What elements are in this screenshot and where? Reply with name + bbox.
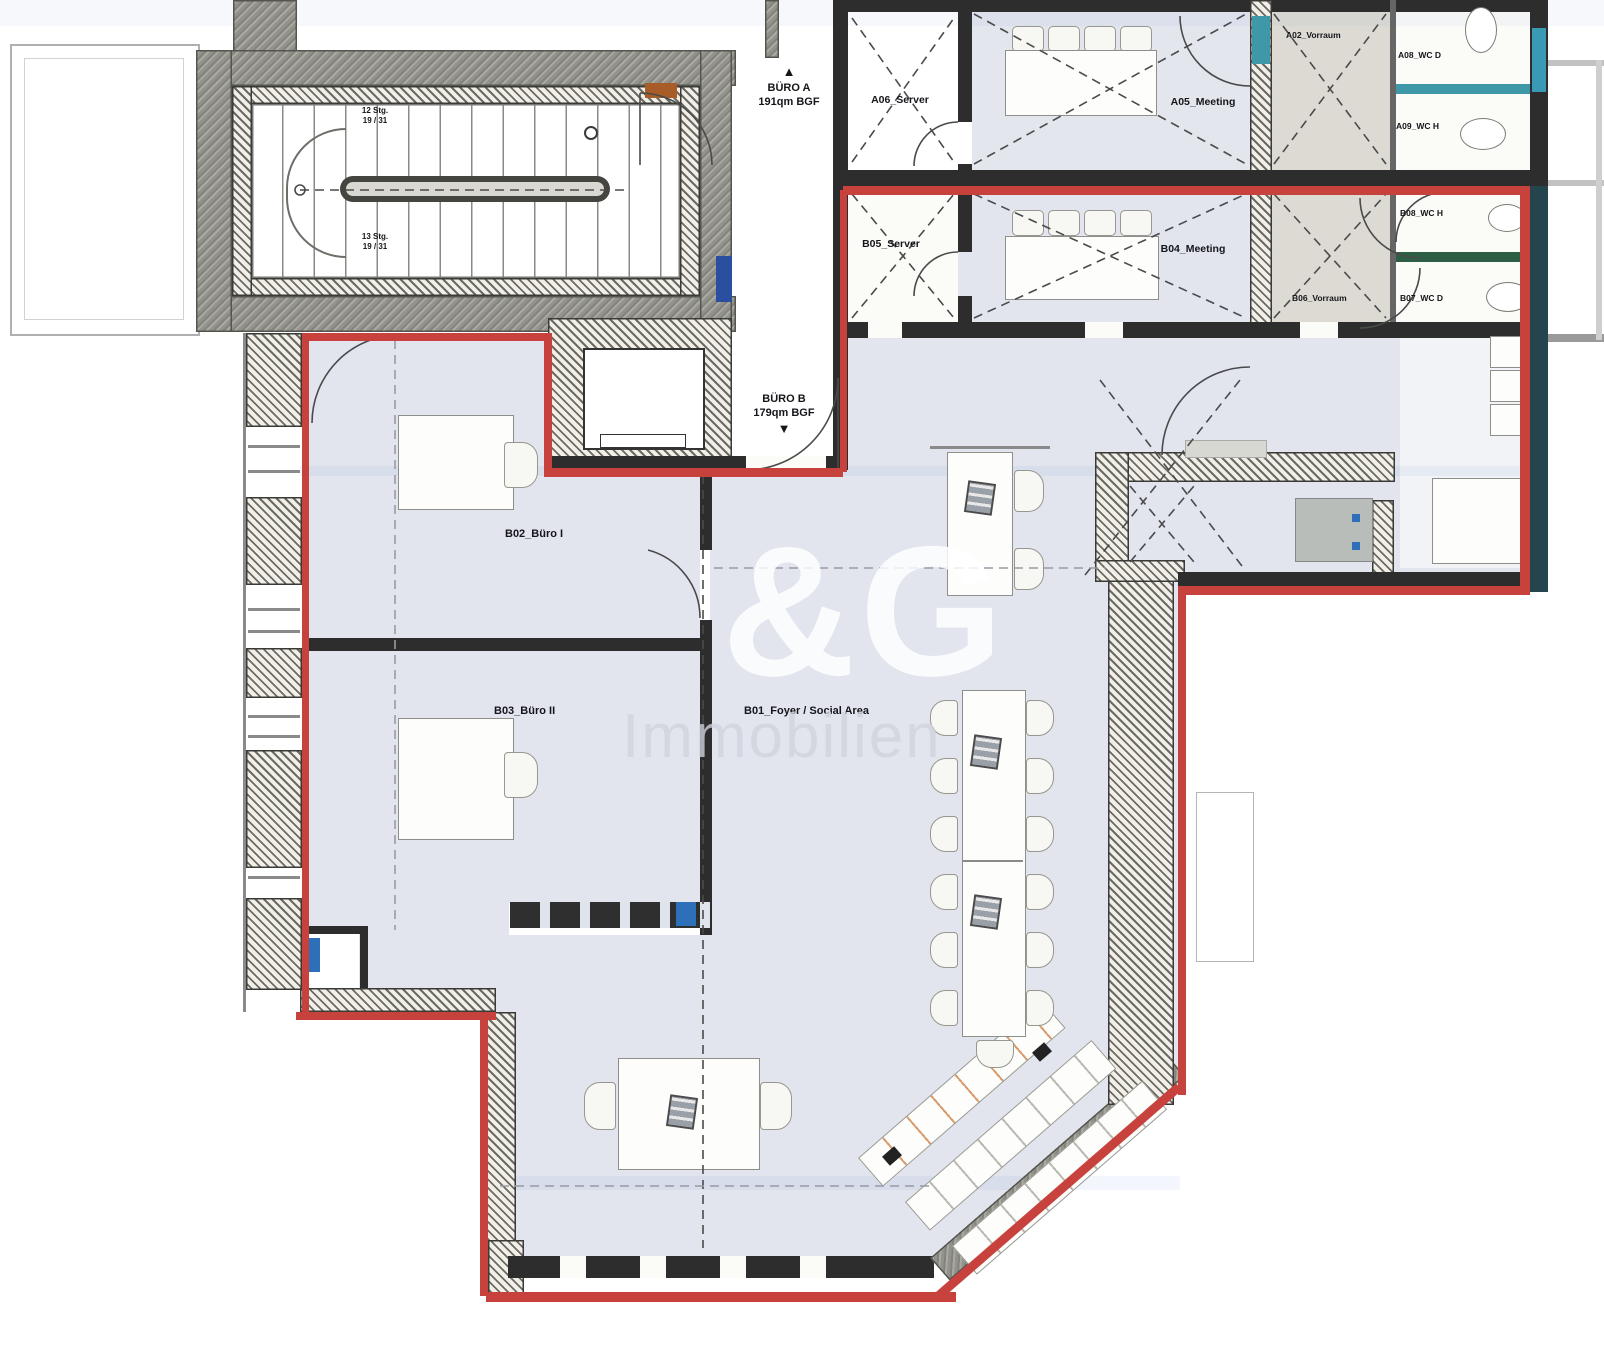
element: BÜRO B xyxy=(726,392,842,406)
door-opening xyxy=(1300,322,1338,338)
desk-chair xyxy=(504,442,538,488)
element xyxy=(1180,16,1250,86)
ghost-box xyxy=(1196,792,1254,962)
down-arrow-icon: ▼ xyxy=(726,421,842,438)
chair xyxy=(1012,26,1044,52)
window-glazing xyxy=(248,715,300,718)
room-label-b04: B04_Meeting xyxy=(1138,243,1248,257)
foyer-right-wall xyxy=(1108,560,1174,1105)
meeting-table-a05 xyxy=(1005,50,1157,116)
element xyxy=(1130,486,1194,562)
chair xyxy=(930,874,958,910)
desk-chair xyxy=(504,752,538,798)
room-label-a05: A05_Meeting xyxy=(1148,96,1258,110)
neighbor-wall-line xyxy=(1596,60,1602,340)
chair xyxy=(976,1040,1014,1068)
strip-south-wall xyxy=(848,322,1530,338)
boundary-top xyxy=(843,186,1530,195)
table-joint xyxy=(963,860,1023,862)
small-wc-wall xyxy=(360,926,368,994)
room-label-b06: B06_Vorraum xyxy=(1292,293,1347,304)
room-label-a06: A06_Server xyxy=(845,94,955,108)
element xyxy=(914,122,958,166)
element xyxy=(852,194,954,318)
room-label-a02: A02_Vorraum xyxy=(1286,30,1341,41)
boundary-foyer-right xyxy=(1178,595,1186,1095)
terrace-inner-line xyxy=(24,58,184,320)
kitchen-cabinet xyxy=(1185,440,1267,458)
room-label-b03: B03_Büro II xyxy=(494,704,555,718)
chair xyxy=(760,1082,792,1130)
room-label-a08: A08_WC D xyxy=(1398,50,1441,61)
top-wall xyxy=(848,0,1530,12)
teal-wall-accent xyxy=(1252,16,1270,64)
office-foyer-partition xyxy=(700,620,712,935)
toilet xyxy=(1465,7,1497,53)
stair-label-lower: 13 Stg.19 / 31 xyxy=(343,232,407,251)
orange-fixture xyxy=(645,83,677,98)
lower-step-wall xyxy=(300,988,496,1012)
blue-dot xyxy=(1352,542,1360,550)
window-slot xyxy=(640,1256,666,1278)
element xyxy=(914,252,958,296)
window-slot xyxy=(800,1256,826,1278)
chair xyxy=(1084,26,1116,52)
kitchen-south-wall xyxy=(1178,572,1530,586)
element xyxy=(852,18,954,162)
chair xyxy=(930,932,958,968)
small-wc-wall xyxy=(302,926,368,934)
chair xyxy=(584,1082,616,1130)
window-slot xyxy=(560,1256,586,1278)
chair xyxy=(1084,210,1116,236)
desk-b03 xyxy=(398,718,514,840)
element: BÜRO A xyxy=(734,81,844,95)
b02-b03-partition xyxy=(302,638,702,651)
watermark-text: Immobilien xyxy=(622,706,942,768)
meeting-table-b04 xyxy=(1005,236,1159,300)
room-label-b02: B02_Büro I xyxy=(505,527,563,541)
boundary-left-lower xyxy=(480,1012,488,1296)
chair xyxy=(1120,26,1152,52)
stair-post xyxy=(584,126,598,140)
window-pier xyxy=(246,898,302,990)
boundary-kitchen-south xyxy=(1178,586,1530,595)
projector-icon xyxy=(970,894,1002,930)
element: 19 / 31 xyxy=(343,116,407,126)
stairwell-inner-wall xyxy=(232,86,252,296)
elevator-panel xyxy=(716,256,732,302)
room-label-a09: A09_WC H xyxy=(1396,121,1439,132)
kitchen-counter-south xyxy=(1095,560,1185,582)
window-slot xyxy=(720,1256,746,1278)
office-foyer-partition xyxy=(700,465,712,550)
table-edge-line xyxy=(930,446,1050,449)
chair xyxy=(1120,210,1152,236)
window-glazing xyxy=(248,876,300,879)
boundary-under-corridor xyxy=(544,468,843,477)
room-label-b05: B05_Server xyxy=(836,238,946,252)
window-glazing xyxy=(248,445,300,448)
projector-icon xyxy=(666,1094,698,1130)
up-arrow-icon: ▲ xyxy=(734,64,844,81)
kitchen-island xyxy=(1295,498,1373,562)
stairwell-inner-wall xyxy=(232,278,700,296)
element: 179qm BGF xyxy=(726,406,842,420)
boundary-bottom xyxy=(486,1292,956,1302)
chair xyxy=(930,816,958,852)
boundary-b02-top xyxy=(302,333,548,341)
element xyxy=(648,550,700,618)
chair xyxy=(1026,700,1054,736)
room-label-b07: B07_WC D xyxy=(1400,293,1443,304)
wall-stub xyxy=(233,0,297,52)
window-pier xyxy=(246,750,302,868)
window-pier xyxy=(246,648,302,698)
window-pier xyxy=(246,333,302,427)
chair xyxy=(1026,932,1054,968)
door-opening xyxy=(868,322,902,338)
unit-division-wall xyxy=(833,170,1530,186)
chair xyxy=(1048,210,1080,236)
boundary-left xyxy=(302,333,309,1016)
element: 13 Stg. xyxy=(343,232,407,242)
chair xyxy=(1026,874,1054,910)
blue-fixture xyxy=(676,902,696,926)
watermark-logo: &G xyxy=(722,520,1008,705)
toilet xyxy=(1460,118,1506,150)
desk-b02 xyxy=(398,415,514,510)
blue-wall-accent xyxy=(1532,28,1546,92)
chair xyxy=(1014,548,1044,590)
chair xyxy=(1026,758,1054,794)
lower-left-wall xyxy=(486,1012,516,1244)
element: 191qm BGF xyxy=(734,95,844,109)
chair xyxy=(1012,210,1044,236)
stairwell-inner-wall xyxy=(680,86,700,296)
buero-b-door-opening xyxy=(746,456,826,468)
element xyxy=(312,335,400,423)
window-glazing xyxy=(248,630,300,633)
boundary-right xyxy=(1520,186,1530,588)
stairwell-wall-left xyxy=(196,50,232,332)
server-meeting-wall xyxy=(958,0,972,122)
window-glazing xyxy=(248,470,300,473)
door-opening xyxy=(1085,322,1123,338)
projector-icon xyxy=(970,734,1002,770)
chair xyxy=(1014,470,1044,512)
window-glazing xyxy=(248,735,300,738)
b05-floor xyxy=(848,192,958,322)
side-desk xyxy=(1432,478,1526,564)
chair xyxy=(1026,990,1054,1026)
element xyxy=(852,18,954,162)
element xyxy=(1130,486,1194,562)
element xyxy=(852,194,954,318)
blue-dot xyxy=(1352,514,1360,522)
floor-plan: 12 Stg.19 / 31 13 Stg.19 / 31 xyxy=(0,0,1604,1352)
window-pier xyxy=(246,497,302,585)
wc-divider-green xyxy=(1396,252,1530,262)
chair xyxy=(1026,816,1054,852)
facade-line xyxy=(243,333,246,1012)
window-glazing xyxy=(248,608,300,611)
stair-label-upper: 12 Stg.19 / 31 xyxy=(343,106,407,125)
boundary-elevator-left xyxy=(544,333,552,473)
stair-handrail-inner xyxy=(346,182,604,196)
stairwell-wall-top xyxy=(196,50,736,86)
element: 12 Stg. xyxy=(343,106,407,116)
chair xyxy=(1048,26,1080,52)
elevator-door xyxy=(600,434,686,448)
wall-stub xyxy=(765,0,779,58)
wc-divider-teal xyxy=(1396,84,1530,94)
chair xyxy=(930,990,958,1026)
buero-b-label: BÜRO B 179qm BGF ▼ xyxy=(726,392,842,437)
stairwell-inner-wall xyxy=(232,86,700,104)
buero-a-label: ▲ BÜRO A 191qm BGF xyxy=(734,64,844,109)
right-edge-wall-lower xyxy=(1530,186,1548,592)
element: 19 / 31 xyxy=(343,242,407,252)
room-label-b08: B08_WC H xyxy=(1400,208,1443,219)
boundary-step xyxy=(296,1012,496,1020)
